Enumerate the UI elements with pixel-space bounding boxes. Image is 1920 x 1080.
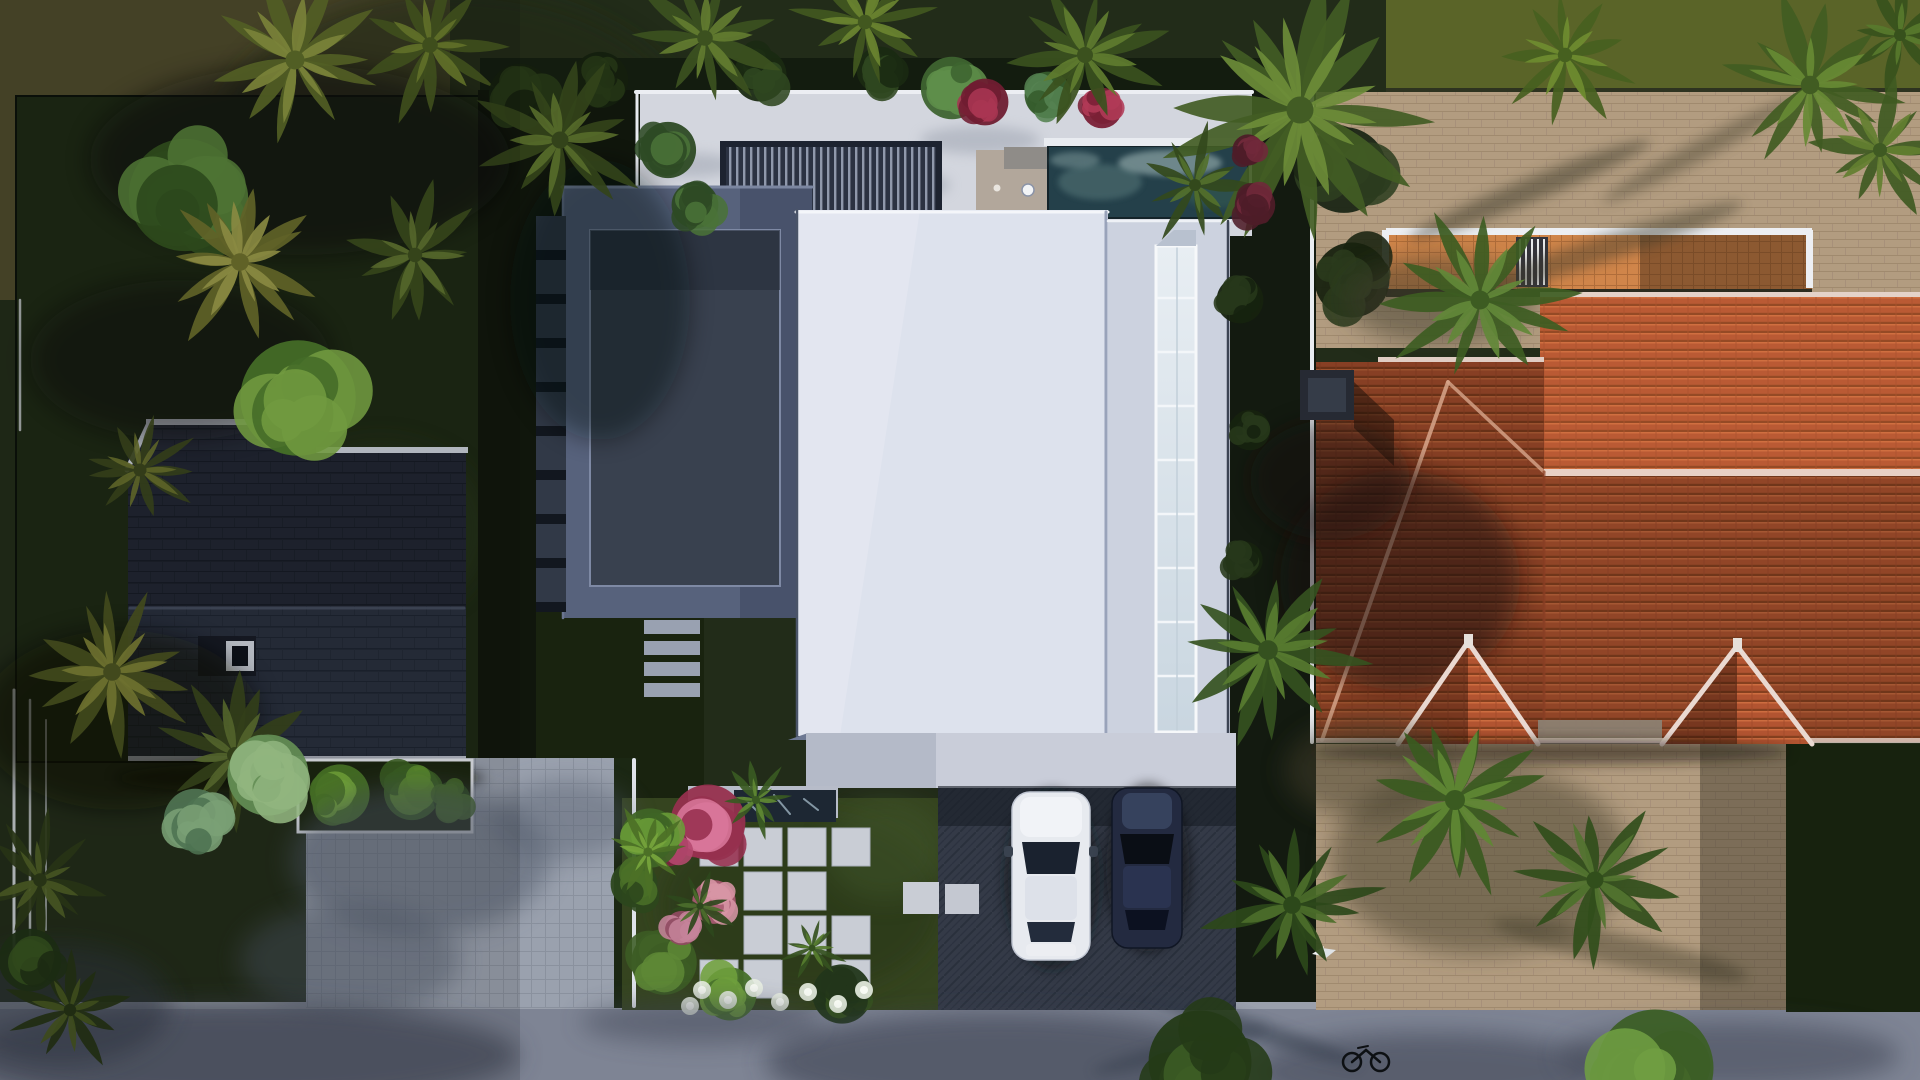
car-dark-roof bbox=[1123, 866, 1171, 908]
shade-right-edge bbox=[1700, 744, 1786, 1010]
car-white-mirror-r bbox=[1089, 846, 1098, 857]
car-white-hood bbox=[1020, 797, 1082, 837]
car-dark-hood bbox=[1122, 793, 1172, 829]
shadow-road-4 bbox=[580, 1000, 820, 1044]
stepping-stone-a bbox=[903, 882, 939, 914]
counter-fitting bbox=[994, 185, 1001, 192]
chimney-right-inner bbox=[1308, 378, 1346, 412]
pool-reflection-4 bbox=[1050, 152, 1100, 168]
counter-sink bbox=[1022, 184, 1034, 196]
car-white-mirror-l bbox=[1004, 846, 1013, 857]
car-white-windshield bbox=[1022, 842, 1080, 874]
car-white-rear-glass bbox=[1027, 922, 1075, 942]
car-white-roof bbox=[1025, 876, 1077, 920]
patio-cap-right bbox=[1806, 230, 1813, 288]
aerial-3d-render bbox=[0, 0, 1920, 1080]
vignette-west bbox=[0, 0, 520, 1080]
car-dark-rear-glass bbox=[1125, 910, 1169, 930]
hedge-right-south bbox=[1786, 744, 1920, 1012]
car-white-trunk bbox=[1026, 944, 1076, 956]
patio-shade bbox=[1640, 235, 1812, 289]
screenshot-root bbox=[0, 0, 1920, 1080]
car-dark-windshield bbox=[1120, 834, 1174, 864]
gable-2-finial bbox=[1733, 638, 1742, 652]
roof-terra-north-sun bbox=[1540, 296, 1920, 474]
skylight-glass-strip bbox=[1156, 246, 1196, 732]
scene-layers bbox=[0, 0, 1920, 1080]
canopy-shadow-4 bbox=[510, 160, 690, 440]
canopy-front-shade bbox=[806, 733, 936, 788]
roof-ridge-main bbox=[1540, 469, 1920, 476]
eave-3 bbox=[1808, 738, 1920, 743]
gable-1-finial bbox=[1464, 634, 1473, 648]
stepping-stone-b bbox=[945, 884, 979, 914]
gutter-top bbox=[1540, 292, 1920, 297]
